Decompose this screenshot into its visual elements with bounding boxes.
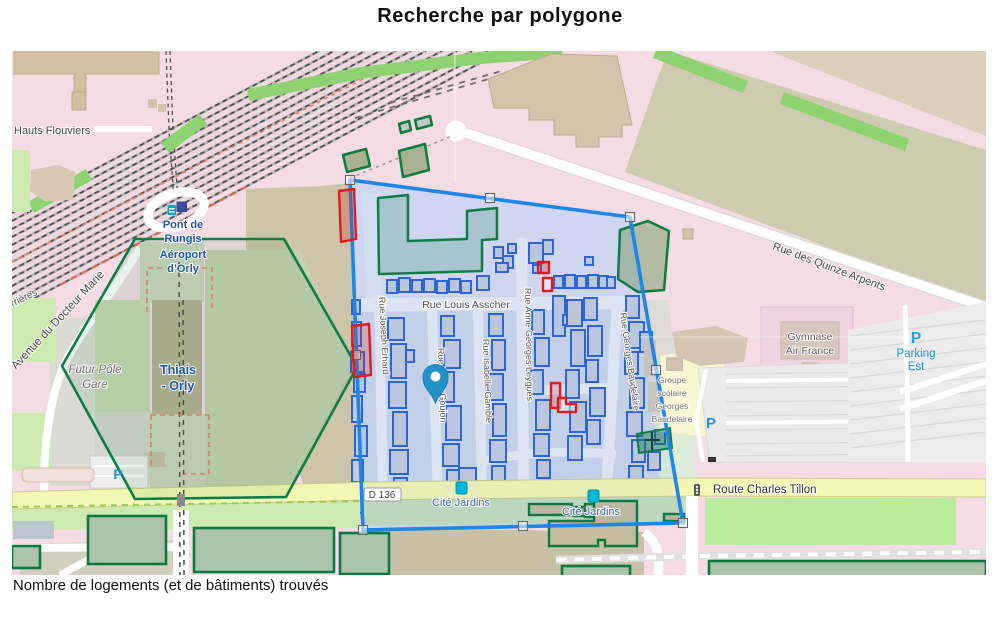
- svg-text:Est: Est: [908, 361, 925, 373]
- svg-text:scolaire: scolaire: [657, 388, 687, 398]
- svg-text:P: P: [911, 330, 921, 347]
- svg-text:Rue Louis Asscher: Rue Louis Asscher: [422, 299, 510, 311]
- svg-text:Gymnase: Gymnase: [788, 331, 833, 343]
- svg-text:Aéroport: Aéroport: [160, 249, 207, 261]
- svg-text:Cité Jardins: Cité Jardins: [432, 497, 491, 509]
- svg-text:Parking: Parking: [897, 348, 936, 360]
- svg-text:Route Charles Tillon: Route Charles Tillon: [713, 484, 817, 496]
- svg-text:Georges: Georges: [656, 401, 689, 411]
- svg-text:Hauts Flouviers: Hauts Flouviers: [14, 125, 91, 137]
- svg-text:Pont de: Pont de: [163, 219, 203, 231]
- svg-text:Gare: Gare: [82, 379, 108, 391]
- svg-text:P: P: [706, 415, 716, 432]
- svg-text:Baudelaire: Baudelaire: [652, 414, 693, 424]
- svg-text:Futur Pôle: Futur Pôle: [68, 364, 121, 376]
- svg-text:Groupe: Groupe: [658, 375, 687, 385]
- svg-text:Thiais: Thiais: [160, 363, 196, 377]
- svg-text:P: P: [113, 466, 122, 482]
- svg-text:d’Orly: d’Orly: [167, 263, 200, 275]
- svg-text:Cité Jardins: Cité Jardins: [562, 506, 621, 518]
- svg-text:Air France: Air France: [786, 345, 835, 357]
- svg-text:Rue Anne Georges Leygues: Rue Anne Georges Leygues: [523, 288, 535, 402]
- svg-text:- Orly: - Orly: [162, 379, 195, 393]
- svg-text:Rungis: Rungis: [164, 233, 201, 245]
- svg-text:D 136: D 136: [369, 490, 396, 501]
